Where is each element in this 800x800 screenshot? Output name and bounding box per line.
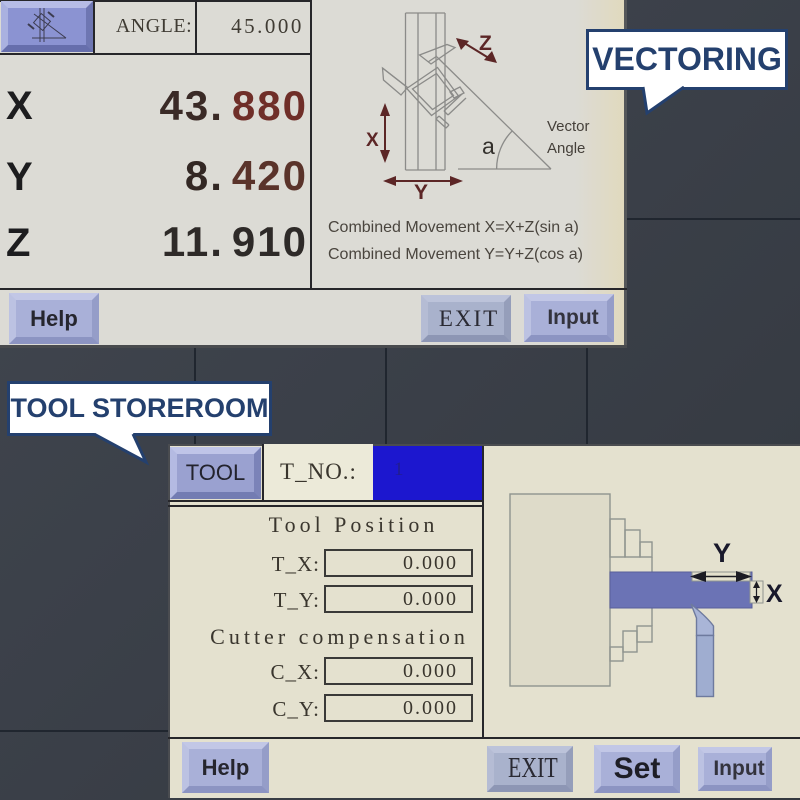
svg-text:Angle: Angle	[547, 140, 585, 157]
svg-text:X: X	[766, 580, 783, 608]
svg-text:a: a	[482, 133, 495, 159]
svg-text:Vector: Vector	[547, 118, 590, 135]
svg-text:Y: Y	[713, 538, 731, 568]
svg-text:Z: Z	[479, 32, 492, 55]
svg-text:Y: Y	[414, 181, 428, 204]
svg-text:X: X	[366, 130, 379, 151]
